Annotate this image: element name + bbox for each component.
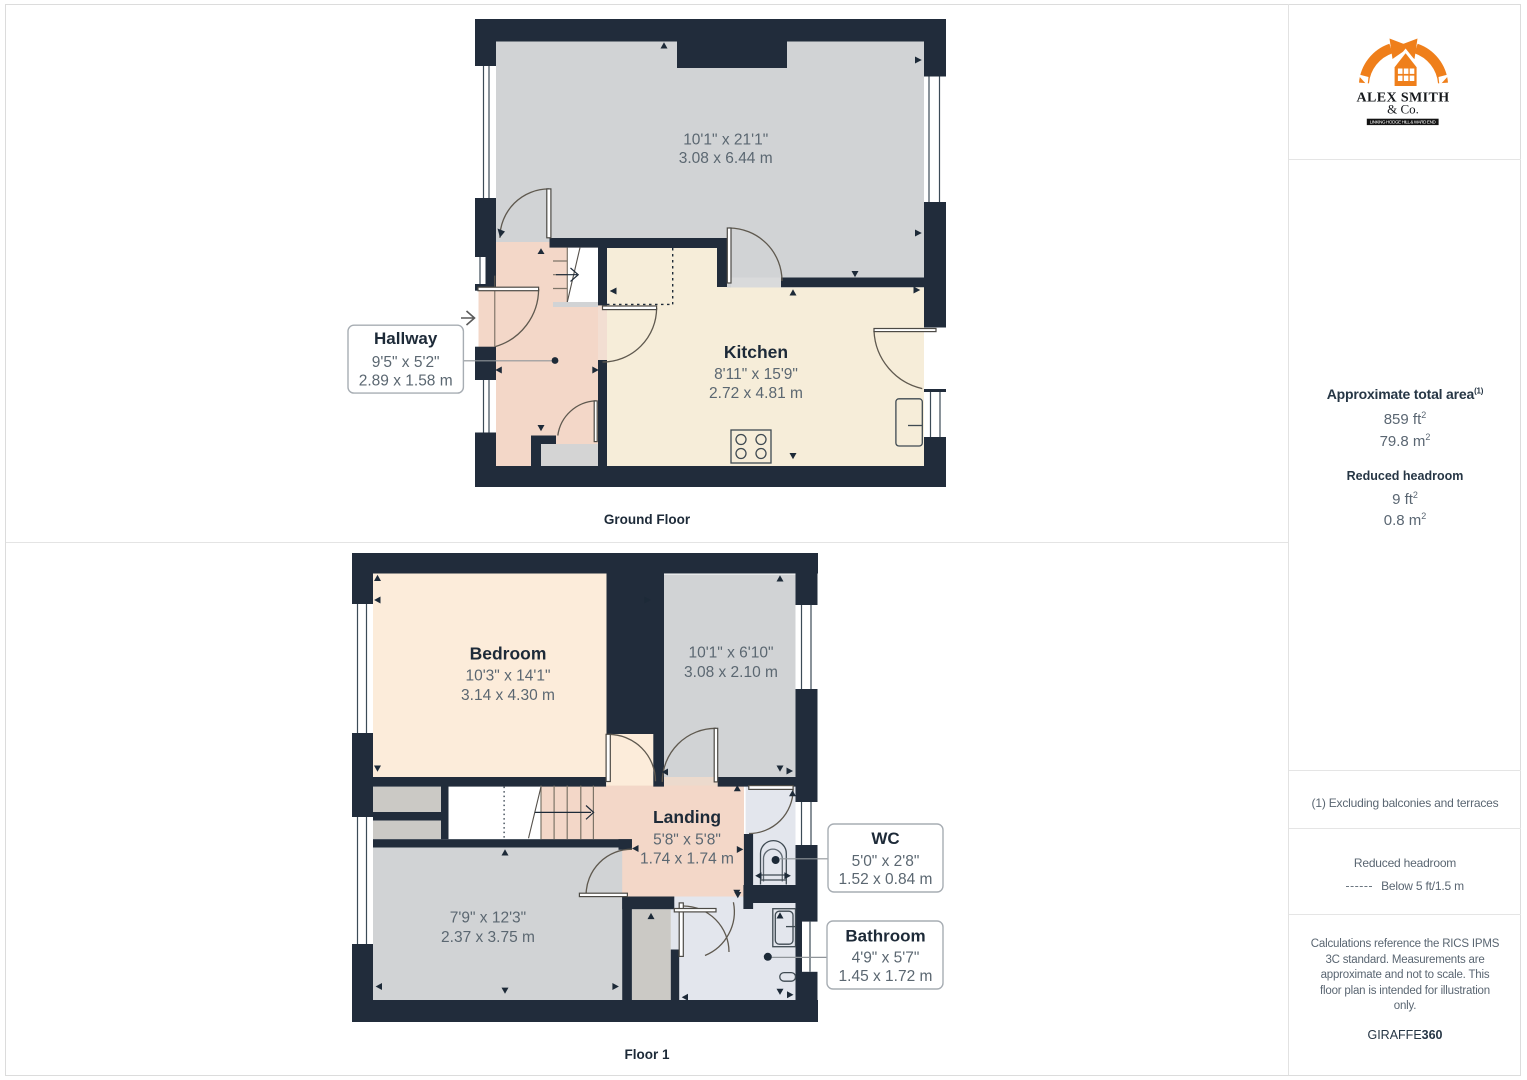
svg-text:& Co.: & Co.: [1387, 102, 1419, 117]
svg-text:WC: WC: [871, 829, 899, 848]
svg-text:5'8" x 5'8": 5'8" x 5'8": [653, 832, 721, 849]
svg-text:Bedroom: Bedroom: [470, 644, 547, 664]
svg-text:5'0" x 2'8": 5'0" x 2'8": [852, 853, 920, 870]
svg-text:10'1" x 21'1": 10'1" x 21'1": [683, 132, 768, 149]
svg-text:Hallway: Hallway: [374, 329, 438, 348]
svg-text:7'9" x 12'3": 7'9" x 12'3": [450, 910, 526, 927]
svg-text:3.08 x 2.10 m: 3.08 x 2.10 m: [684, 664, 778, 681]
svg-text:2.37 x 3.75 m: 2.37 x 3.75 m: [441, 929, 535, 946]
svg-text:4'9" x 5'7": 4'9" x 5'7": [852, 950, 920, 967]
svg-text:Kitchen: Kitchen: [724, 342, 788, 362]
svg-text:Landing: Landing: [653, 807, 721, 827]
svg-text:LINKING HODGE HILL & WARD END: LINKING HODGE HILL & WARD END: [1370, 119, 1437, 124]
svg-text:8'11" x 15'9": 8'11" x 15'9": [714, 366, 798, 383]
svg-text:1.74 x 1.74 m: 1.74 x 1.74 m: [640, 851, 734, 868]
svg-text:9'5" x 5'2": 9'5" x 5'2": [372, 354, 440, 371]
svg-text:1.45 x 1.72 m: 1.45 x 1.72 m: [839, 968, 933, 985]
svg-text:3.14 x 4.30 m: 3.14 x 4.30 m: [461, 687, 555, 704]
svg-text:Bathroom: Bathroom: [845, 927, 925, 946]
svg-text:2.89 x 1.58 m: 2.89 x 1.58 m: [359, 373, 453, 390]
svg-text:1.52 x 0.84 m: 1.52 x 0.84 m: [839, 871, 933, 888]
svg-text:10'3" x 14'1": 10'3" x 14'1": [465, 668, 550, 685]
svg-text:10'1" x 6'10": 10'1" x 6'10": [688, 645, 773, 662]
svg-text:2.72 x 4.81 m: 2.72 x 4.81 m: [709, 385, 803, 402]
svg-text:3.08 x 6.44 m: 3.08 x 6.44 m: [679, 150, 773, 167]
